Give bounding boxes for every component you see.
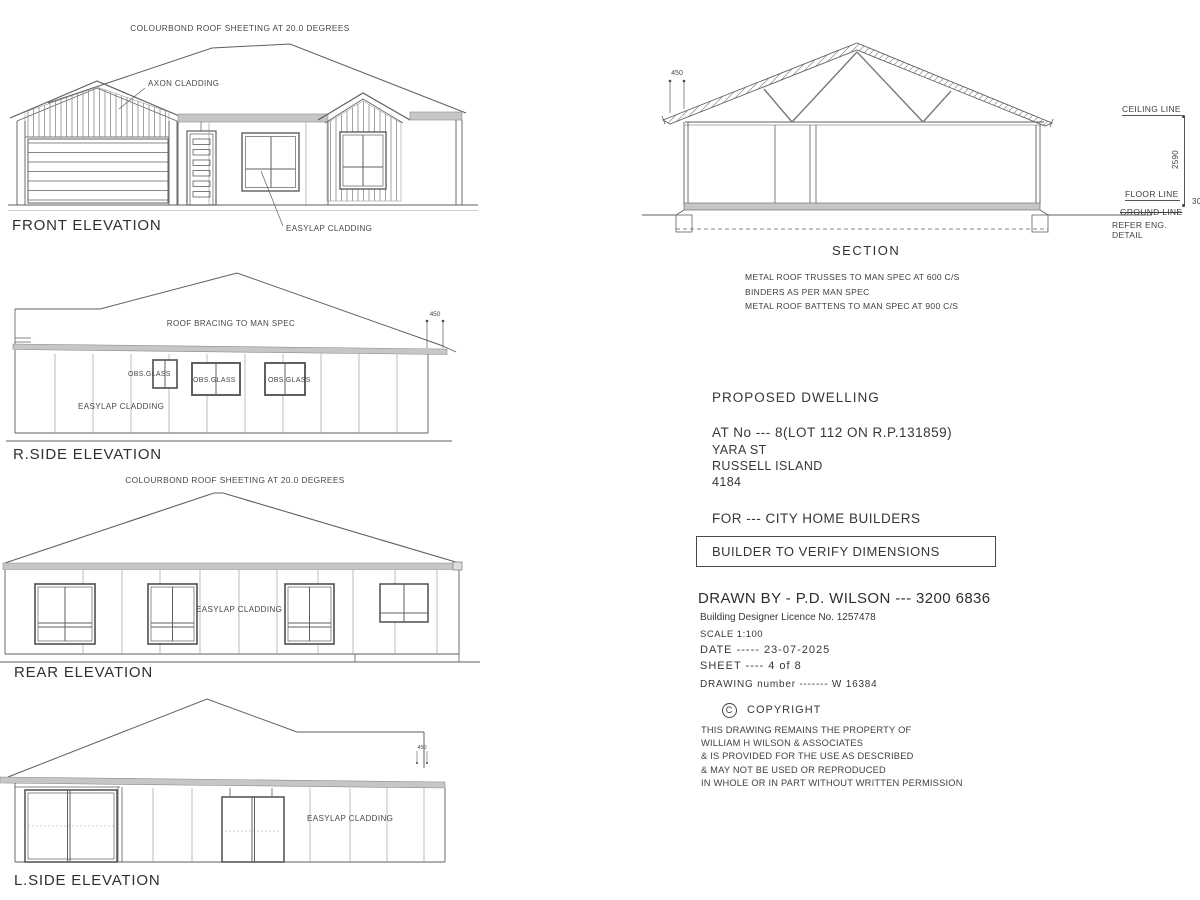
- drawn-by-line: DRAWN BY - P.D. WILSON --- 3200 6836: [698, 590, 991, 607]
- scale-line: SCALE 1:100: [700, 629, 763, 640]
- floor-line-label: FLOOR LINE: [1125, 189, 1180, 201]
- copyright-notice-line: IN WHOLE OR IN PART WITHOUT WRITTEN PERM…: [701, 777, 963, 790]
- section-note-line: BINDERS AS PER MAN SPEC: [745, 285, 960, 300]
- eave-dimension: 450: [426, 311, 445, 348]
- easylap-cladding-label: EASYLAP CLADDING: [196, 605, 282, 614]
- roof-outline: [15, 273, 456, 352]
- axon-cladding-label: AXON CLADDING: [148, 79, 219, 88]
- sliding-door-1: [25, 790, 117, 862]
- fascia-band: [3, 563, 461, 570]
- front-roof-note: COLOURBOND ROOF SHEETING AT 20.0 DEGREES: [130, 23, 350, 33]
- lside-elevation-title: L.SIDE ELEVATION: [14, 872, 160, 889]
- drawing-sheet: COLOURBOND ROOF SHEETING AT 20.0 DEGREES: [0, 0, 1200, 900]
- garage-gable: [10, 81, 184, 137]
- garage-door: [28, 139, 168, 203]
- address-line-2: YARA ST: [712, 443, 767, 457]
- lside-elevation-drawing: 450 EASYLAP CLADDING: [0, 685, 470, 880]
- refer-eng-detail-label: REFER ENG. DETAIL: [1112, 220, 1200, 240]
- dim-dot-bottom: [1182, 204, 1185, 207]
- project-title: PROPOSED DWELLING: [712, 390, 880, 405]
- verify-dimensions-box: BUILDER TO VERIFY DIMENSIONS: [696, 536, 996, 567]
- front-elevation-drawing: COLOURBOND ROOF SHEETING AT 20.0 DEGREES: [0, 0, 490, 240]
- section-note-line: METAL ROOF TRUSSES TO MAN SPEC AT 600 C/…: [745, 270, 960, 285]
- fascia-band: [0, 777, 445, 788]
- window-1: [35, 584, 95, 644]
- section-notes: METAL ROOF TRUSSES TO MAN SPEC AT 600 C/…: [745, 270, 960, 314]
- rside-elevation-title: R.SIDE ELEVATION: [13, 446, 162, 463]
- copyright-notice-line: & IS PROVIDED FOR THE USE AS DESCRIBED: [701, 750, 963, 763]
- rear-elevation-drawing: COLOURBOND ROOF SHEETING AT 20.0 DEGREES: [0, 467, 490, 667]
- eave-dimension: 450: [416, 745, 428, 764]
- client-line: FOR --- CITY HOME BUILDERS: [712, 511, 921, 526]
- centre-window: [242, 133, 299, 191]
- obs-glass-label-2: OBS.GLASS: [193, 377, 236, 384]
- floor-slab: [642, 203, 1152, 232]
- rear-elevation-title: REAR ELEVATION: [14, 664, 153, 681]
- fascia-band: [13, 344, 447, 355]
- obs-glass-label-1: OBS.GLASS: [128, 371, 171, 378]
- gutter-stop: [453, 562, 462, 570]
- wall-height-dimension-line: [1184, 117, 1185, 206]
- roof-outline: [8, 699, 424, 777]
- roof-truss: [662, 43, 1053, 127]
- right-wing-wall: [410, 112, 462, 205]
- svg-text:450: 450: [417, 745, 426, 751]
- section-title: SECTION: [832, 243, 900, 258]
- ground-line: [8, 205, 478, 211]
- window-2: [148, 584, 197, 644]
- front-elevation-title: FRONT ELEVATION: [12, 217, 162, 234]
- copyright-notice: THIS DRAWING REMAINS THE PROPERTY OF WIL…: [701, 724, 963, 790]
- slab-dimension: 30: [1192, 197, 1200, 206]
- sliding-door-2: [222, 788, 284, 862]
- drawing-number-line: DRAWING number ------- W 16384: [700, 679, 878, 690]
- roof-outline: [5, 493, 459, 563]
- svg-text:450: 450: [430, 311, 441, 318]
- sheet-line: SHEET ---- 4 of 8: [700, 660, 802, 672]
- rear-roof-note: COLOURBOND ROOF SHEETING AT 20.0 DEGREES: [125, 475, 345, 485]
- easylap-cladding-label: EASYLAP CLADDING: [307, 814, 393, 823]
- copyright-symbol-icon: C: [722, 703, 737, 718]
- copyright-notice-line: WILLIAM H WILSON & ASSOCIATES: [701, 737, 963, 750]
- svg-text:450: 450: [671, 70, 683, 77]
- section-drawing: 450: [640, 25, 1200, 240]
- ceiling-line-label: CEILING LINE: [1122, 104, 1182, 116]
- licence-line: Building Designer Licence No. 1257478: [700, 612, 876, 623]
- address-line-4: 4184: [712, 475, 741, 489]
- date-line: DATE ----- 23-07-2025: [700, 644, 830, 656]
- obs-glass-label-3: OBS.GLASS: [268, 377, 311, 384]
- window-3: [285, 584, 334, 644]
- address-line-1: AT No --- 8(LOT 112 ON R.P.131859): [712, 425, 952, 440]
- copyright-title: COPYRIGHT: [747, 704, 821, 716]
- address-line-3: RUSSELL ISLAND: [712, 459, 823, 473]
- copyright-notice-line: & MAY NOT BE USED OR REPRODUCED: [701, 764, 963, 777]
- copyright-row: CCOPYRIGHT: [722, 703, 821, 718]
- easylap-cladding-label: EASYLAP CLADDING: [286, 224, 372, 233]
- eave-dimension: 450: [669, 70, 686, 113]
- rside-elevation-drawing: ROOF BRACING TO MAN SPEC 450 OBS.GLASS O…: [0, 262, 470, 447]
- ground-line-label: GROUND LINE: [1120, 207, 1182, 217]
- right-gable-window: [340, 132, 386, 189]
- walls: [684, 122, 1040, 206]
- dim-dot-top: [1182, 115, 1185, 118]
- copyright-notice-line: THIS DRAWING REMAINS THE PROPERTY OF: [701, 724, 963, 737]
- easylap-cladding-label: EASYLAP CLADDING: [78, 402, 164, 411]
- sheet-joints: [153, 788, 424, 862]
- section-note-line: METAL ROOF BATTENS TO MAN SPEC AT 900 C/…: [745, 299, 960, 314]
- verify-dimensions-text: BUILDER TO VERIFY DIMENSIONS: [712, 544, 940, 559]
- wall-height-dimension: 2590: [1171, 150, 1180, 169]
- entry-door: [187, 122, 216, 205]
- window-4: [380, 584, 428, 622]
- roof-bracing-note: ROOF BRACING TO MAN SPEC: [167, 319, 295, 328]
